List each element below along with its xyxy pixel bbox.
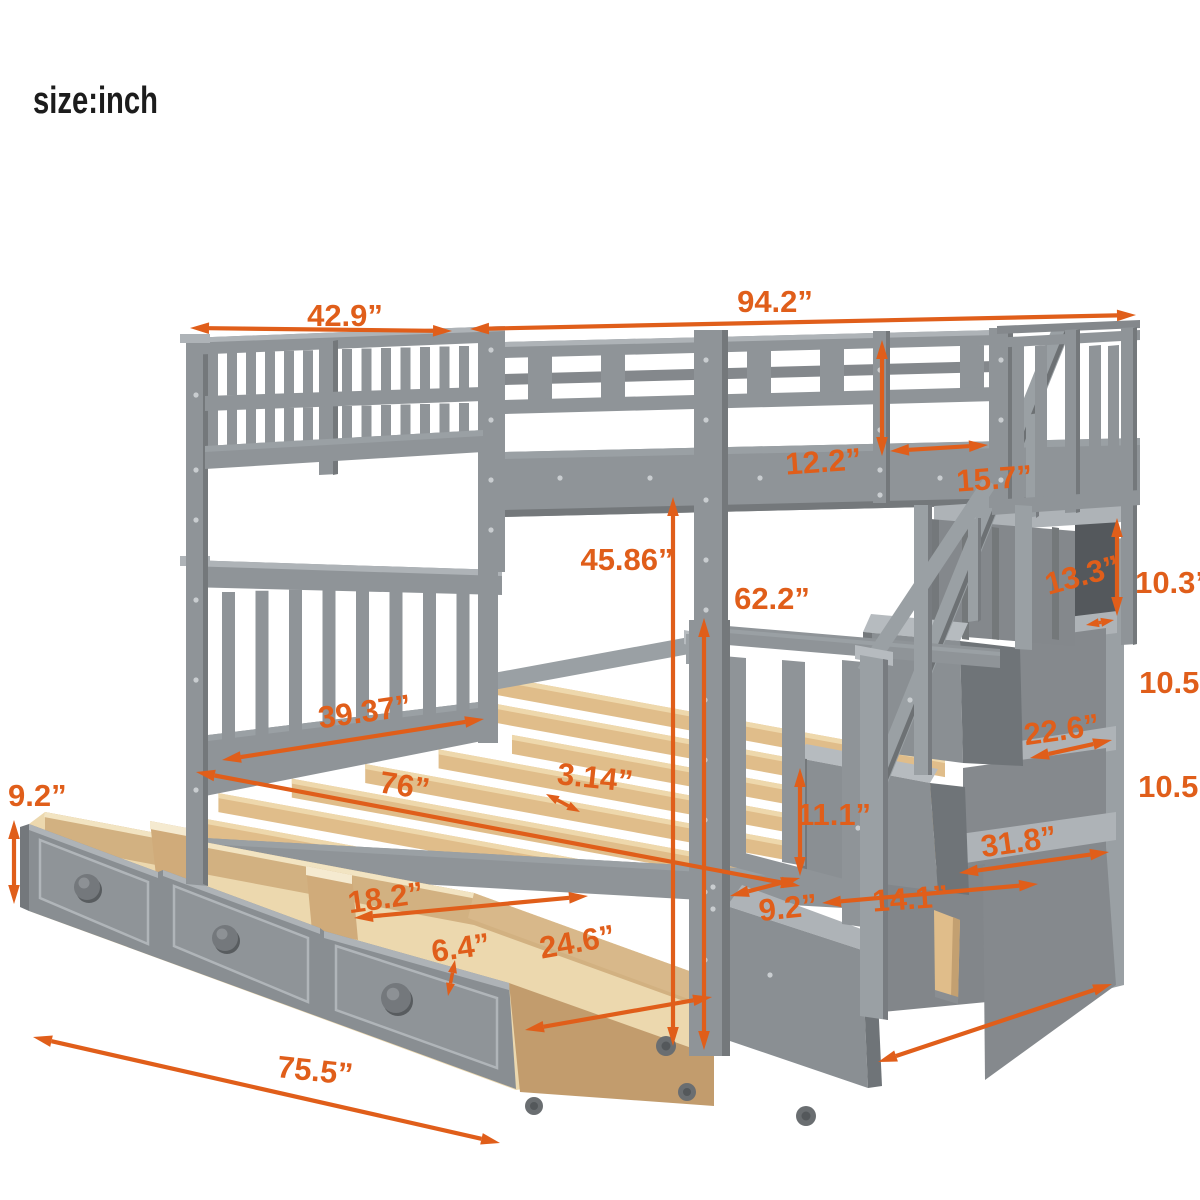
svg-text:14.1”: 14.1” [871, 878, 949, 918]
svg-text:11.1”: 11.1” [797, 797, 871, 832]
svg-text:10.5”: 10.5” [1139, 665, 1200, 700]
svg-text:9.2”: 9.2” [757, 887, 819, 928]
svg-text:15.7”: 15.7” [955, 458, 1033, 498]
svg-text:10.3”: 10.3” [1135, 565, 1200, 600]
svg-text:9.2”: 9.2” [8, 778, 67, 813]
svg-text:62.2”: 62.2” [734, 581, 810, 616]
svg-text:12.2”: 12.2” [784, 441, 862, 481]
svg-text:94.2”: 94.2” [737, 284, 813, 319]
svg-text:42.9”: 42.9” [307, 298, 383, 333]
svg-text:45.86”: 45.86” [580, 542, 673, 577]
svg-text:10.5”: 10.5” [1138, 769, 1200, 804]
svg-text:size:inch: size:inch [33, 80, 158, 122]
